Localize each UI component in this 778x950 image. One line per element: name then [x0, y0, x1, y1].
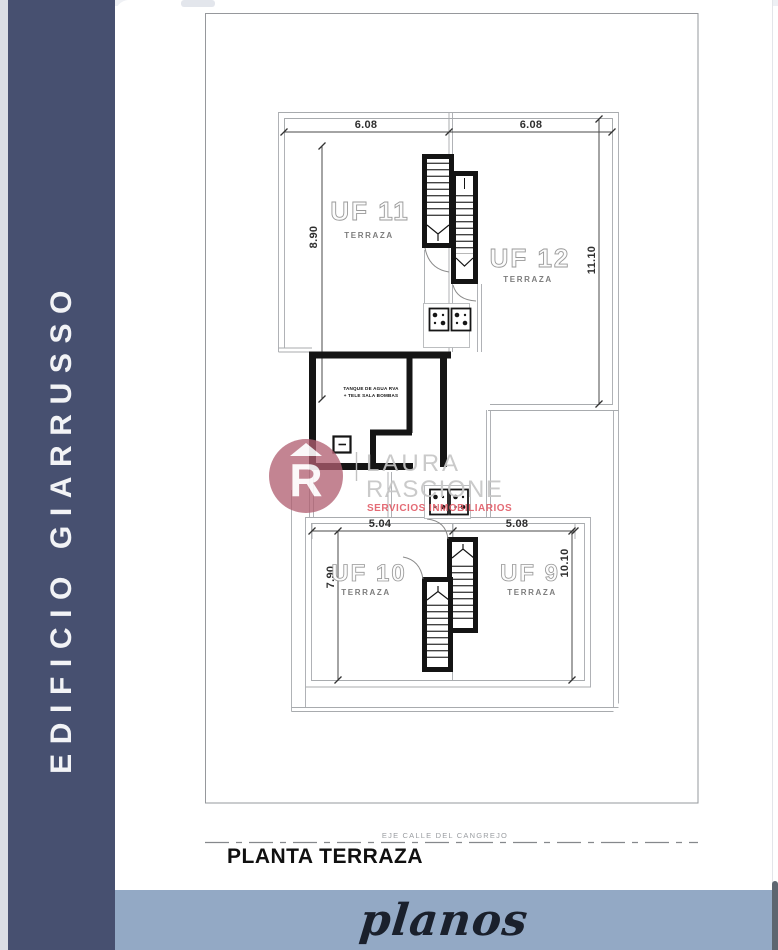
scrollbar-thumb[interactable] [772, 881, 778, 950]
street-axis-label: EJE CALLE DEL CANGREJO [382, 831, 508, 840]
dim-lower-width-left: 5.04 [369, 518, 392, 530]
watermark-name-line2: RASCIONE [366, 476, 503, 503]
plan-title: PLANTA TERRAZA [227, 845, 423, 868]
dim-upper-height-right: 11.10 [586, 246, 598, 274]
door-swing-arc-uf12 [453, 285, 476, 301]
building-title-sidebar: EDIFICIO GIARRUSSO [8, 0, 115, 950]
unit-label-uf12: UF 12 [490, 243, 571, 273]
terrace-label-uf9: TERRAZA [507, 588, 556, 597]
stair-uf11 [425, 157, 452, 246]
watermark-tagline: SERVICIOS INMOBILIARIOS [367, 503, 512, 514]
building-title: EDIFICIO GIARRUSSO [45, 281, 79, 774]
dim-lower-width-right: 5.08 [506, 518, 529, 530]
unit-label-uf9: UF 9 [500, 560, 560, 587]
floor-plan-canvas: 6.08 6.08 8.90 11.10 5.04 5.08 7.90 10.1… [0, 0, 778, 950]
unit-label-uf10: UF 10 [331, 560, 406, 587]
terrace-label-uf10: TERRAZA [341, 588, 390, 597]
door-swing-arc-uf11 [425, 248, 449, 272]
stair-uf10 [425, 580, 451, 670]
footer-bar: planos [115, 890, 773, 950]
dimension-upper-width: 6.08 6.08 [281, 119, 616, 136]
door-swing-arc-uf9 [427, 519, 448, 539]
dim-upper-height-left: 8.90 [308, 226, 320, 249]
dim-lower-height-right: 10.10 [559, 548, 571, 577]
screenshot-root: { "sidebar": { "title": "EDIFICIO GIARRU… [0, 0, 778, 950]
watermark: R LAURA RASCIONE SERVICIOS INMOBILIARIOS [269, 439, 512, 514]
plans-label: planos [357, 895, 530, 946]
tank-room-note-line2: + TELE SALA BOMBAS [344, 393, 399, 398]
tank-room-note-line1: TANQUE DE AGUA RVA [343, 386, 399, 391]
grill-counter-upper [424, 304, 471, 348]
watermark-name-line1: LAURA [366, 450, 461, 477]
dim-upper-width-right: 6.08 [520, 119, 543, 131]
unit-label-uf11: UF 11 [330, 196, 409, 226]
stair-uf12 [454, 174, 476, 282]
terrace-label-uf11: TERRAZA [344, 231, 393, 240]
top-pill-artifact [181, 0, 215, 7]
terrace-label-uf12: TERRAZA [503, 275, 552, 284]
grill-burner-box [430, 309, 449, 331]
stair-uf9 [450, 540, 476, 631]
watermark-monogram: R [289, 454, 322, 506]
grill-burner-box [452, 309, 471, 331]
dim-upper-width-left: 6.08 [355, 119, 378, 131]
